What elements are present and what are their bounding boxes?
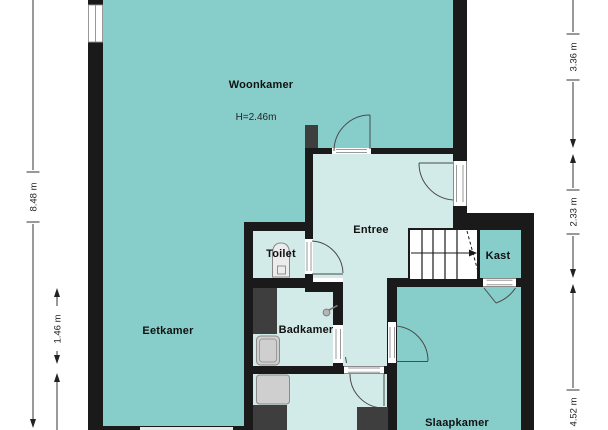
room-slaapkamer-floor <box>397 287 521 430</box>
wall-left-outer <box>88 0 103 430</box>
opening-badkamer <box>334 325 343 363</box>
keuken-counter-dark-fixture2 <box>357 407 388 430</box>
label-toilet: Toilet <box>266 248 296 260</box>
dim-label-right-bottom: 4.52 m <box>569 397 580 426</box>
wall-woonkamer-entree <box>305 148 453 154</box>
label-ceiling-height: H=2.46m <box>236 112 277 123</box>
wall-toilet-bottom <box>244 278 313 288</box>
column-fixture <box>305 125 318 148</box>
room-eetkamer-floor <box>103 222 244 426</box>
label-woonkamer: Woonkamer <box>229 79 294 91</box>
dim-arrow-up-icon <box>54 288 60 297</box>
dim-label-left-partial: 1.46 m <box>53 314 64 343</box>
dim-arrow-down-icon <box>570 269 576 278</box>
dim-arrow-up-icon <box>570 284 576 293</box>
dim-label-right-top: 3.36 m <box>569 42 580 71</box>
dim-arrow-down-icon <box>54 355 60 364</box>
keuken-counter-dark-fixture <box>253 405 287 430</box>
opening-toilet <box>305 239 313 274</box>
room-corridor-floor <box>343 278 387 374</box>
wall-right-lower <box>521 213 534 430</box>
dim-arrow-down-icon <box>570 139 576 148</box>
floor-plan-canvas: Woonkamer H=2.46m Eetkamer Entree Toilet… <box>0 0 608 430</box>
stairs-outline <box>409 229 478 280</box>
floor-plan-svg: Woonkamer H=2.46m Eetkamer Entree Toilet… <box>0 0 608 430</box>
wall-toilet-top <box>244 222 313 231</box>
shower-head-icon <box>323 309 330 316</box>
badkamer-counter-fixture <box>253 288 277 334</box>
dim-label-left-total: 8.48 m <box>29 182 40 211</box>
stairs <box>409 229 480 280</box>
dim-label-right-middle: 2.33 m <box>569 197 580 226</box>
dim-arrow-up-icon <box>54 373 60 382</box>
dim-arrow-down-icon <box>30 419 36 428</box>
wall-badkamer-right-upper <box>333 283 343 325</box>
label-slaapkamer: Slaapkamer <box>425 417 489 429</box>
opening-front-door <box>454 161 467 206</box>
label-eetkamer: Eetkamer <box>142 325 194 337</box>
label-badkamer: Badkamer <box>279 324 334 336</box>
room-woonkamer-floor-lower <box>103 148 305 222</box>
keuken-counter-light-fixture <box>257 375 290 404</box>
room-woonkamer-floor <box>103 0 453 148</box>
opening-woonkamer <box>332 148 371 154</box>
wall-inner-left <box>244 222 253 430</box>
label-entree: Entree <box>353 224 388 236</box>
dim-arrow-up-icon <box>570 154 576 163</box>
label-kast: Kast <box>486 250 511 262</box>
